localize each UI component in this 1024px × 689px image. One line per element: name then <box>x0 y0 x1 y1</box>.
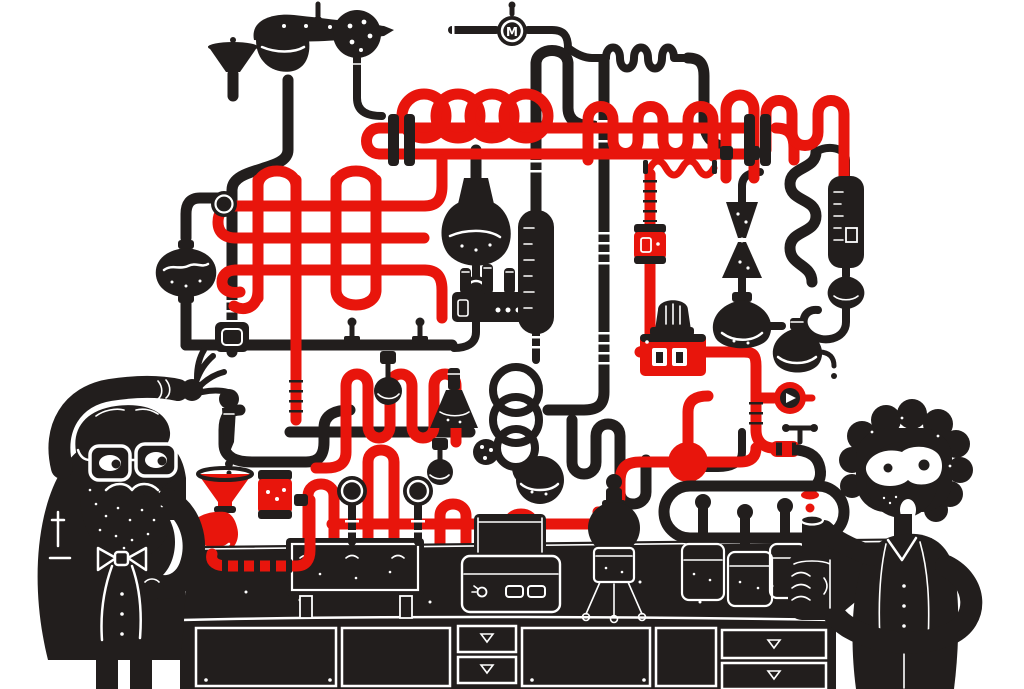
canister-left <box>258 470 292 519</box>
pupil <box>884 464 893 473</box>
hourglass-vessel <box>722 202 762 278</box>
gauge-m: M <box>497 16 527 46</box>
round-flask <box>441 178 510 306</box>
right-flask <box>713 292 771 348</box>
clock-gauge <box>211 191 237 217</box>
glasses-icon <box>78 444 176 480</box>
red-drip <box>806 504 815 513</box>
coupling-block <box>215 322 249 352</box>
condenser <box>518 210 554 334</box>
faucet-outlet <box>801 491 819 500</box>
liquid-pot <box>156 240 217 303</box>
leg <box>96 658 118 689</box>
hot-plate <box>462 514 560 612</box>
manifold-with-test-tubes <box>452 264 528 322</box>
illustration-canvas: M <box>0 0 1024 689</box>
gauge-letter: M <box>506 25 518 39</box>
ball-junction <box>668 442 708 482</box>
spiral-flask <box>516 456 564 504</box>
perforated-ball <box>333 10 381 64</box>
stand-gauges <box>337 476 433 542</box>
leg <box>130 660 152 689</box>
red-funnel <box>198 468 252 513</box>
mad-science-lab-scene: M <box>0 0 1024 689</box>
pressure-gauge <box>774 382 812 414</box>
pupil <box>919 460 930 471</box>
funnel <box>208 42 258 72</box>
leg <box>914 662 932 689</box>
leg <box>882 662 900 689</box>
canister <box>634 224 666 264</box>
graduated-cylinder <box>828 176 865 309</box>
